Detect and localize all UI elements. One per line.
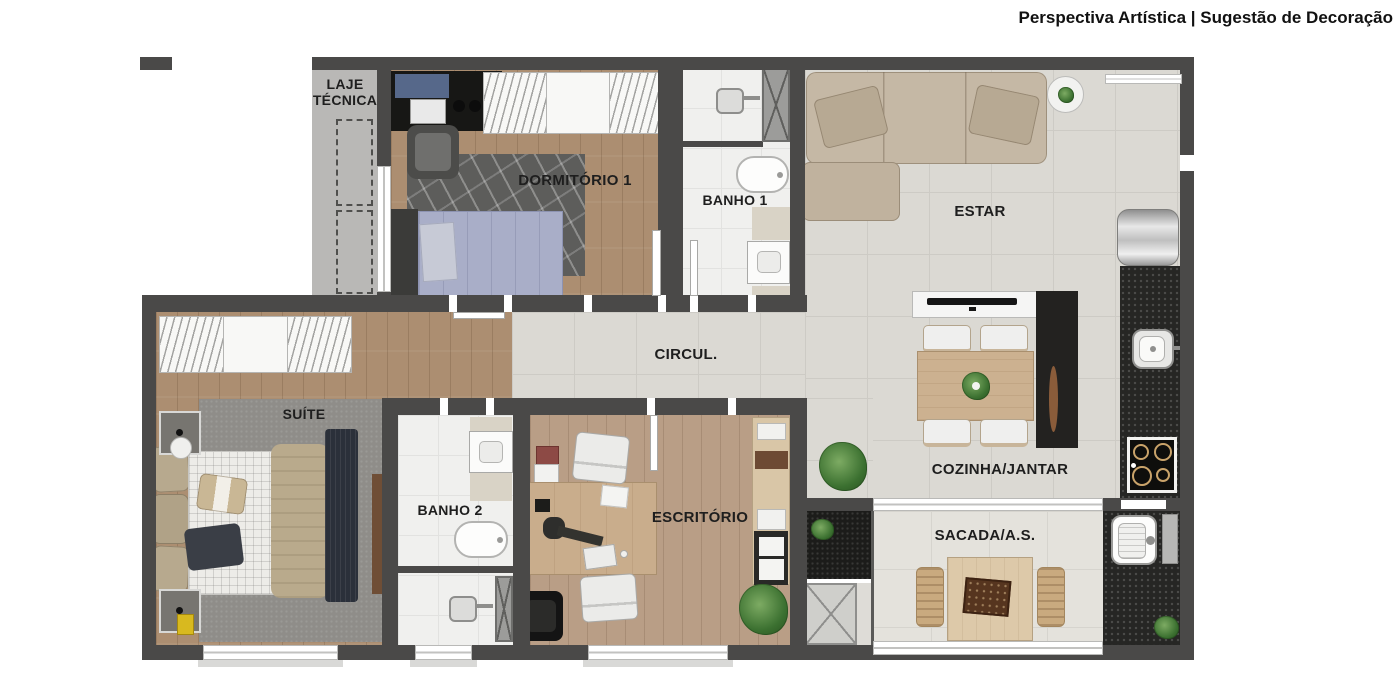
faucet bbox=[1146, 536, 1155, 545]
dining-chair bbox=[980, 325, 1028, 353]
plant bbox=[811, 519, 834, 540]
wardrobe-door bbox=[484, 73, 547, 133]
shaft-hatched bbox=[762, 68, 790, 142]
dining-chair bbox=[923, 325, 971, 353]
cooktop-burner bbox=[1156, 468, 1170, 482]
cooktop-burner bbox=[1154, 443, 1172, 461]
shaft-hatched bbox=[805, 583, 857, 645]
room-label-dormitorio-1: DORMITÓRIO 1 bbox=[505, 172, 645, 189]
room-label-cozinha-jantar: COZINHA/JANTAR bbox=[925, 461, 1075, 478]
speaker bbox=[469, 100, 481, 112]
shaft-hatched bbox=[495, 576, 513, 642]
bed-headboard bbox=[389, 209, 418, 300]
room-label-estar: ESTAR bbox=[940, 203, 1020, 220]
railing-divider bbox=[871, 511, 874, 645]
shelf-drawer bbox=[755, 451, 788, 469]
door-leaf bbox=[690, 240, 698, 296]
bed-pillow bbox=[419, 222, 458, 282]
wall bbox=[807, 498, 873, 511]
door-leaf bbox=[652, 230, 661, 296]
ac-condenser bbox=[336, 210, 373, 294]
bed-blanket bbox=[271, 444, 329, 598]
utility-panel bbox=[1162, 514, 1178, 564]
office-chair bbox=[572, 431, 631, 484]
wall bbox=[790, 57, 805, 312]
office-chair bbox=[579, 573, 638, 623]
desk-chair-seat bbox=[415, 133, 451, 171]
desk-monitor bbox=[395, 74, 449, 98]
nightstand-knob bbox=[176, 607, 183, 614]
door-leaf bbox=[650, 415, 658, 471]
bath-mat bbox=[470, 417, 512, 431]
printer bbox=[757, 423, 786, 440]
room-label-sacada-as: SACADA/A.S. bbox=[915, 527, 1055, 544]
side-cabinet bbox=[534, 464, 559, 483]
door-jamb bbox=[728, 398, 736, 415]
wall bbox=[312, 57, 1194, 70]
dining-chair bbox=[923, 419, 971, 447]
bed-pillow bbox=[152, 494, 189, 544]
toilet-flush bbox=[497, 537, 503, 543]
shower bbox=[449, 596, 477, 622]
door-jamb bbox=[1121, 500, 1166, 509]
shelf-box bbox=[757, 509, 786, 530]
speaker bbox=[453, 100, 465, 112]
wardrobe-door bbox=[547, 73, 610, 133]
bed-throw bbox=[184, 523, 245, 572]
plant bbox=[1058, 87, 1074, 103]
shelf-cabinet-drawer bbox=[759, 537, 784, 556]
room-label-laje-tecnica: LAJE TÉCNICA bbox=[310, 76, 380, 108]
sliding-glass-door bbox=[873, 498, 1103, 511]
tablet bbox=[535, 499, 550, 512]
serving-tray bbox=[963, 577, 1012, 617]
plant bbox=[819, 442, 867, 491]
wall bbox=[513, 415, 530, 645]
door-jamb bbox=[504, 295, 512, 312]
storage-box bbox=[536, 446, 559, 465]
paper-stack bbox=[600, 485, 629, 509]
cabinet-handle bbox=[1049, 366, 1058, 432]
wall bbox=[142, 295, 156, 660]
nightstand-knob bbox=[176, 429, 183, 436]
wardrobe-door bbox=[288, 317, 351, 372]
bed-pillow bbox=[196, 473, 249, 515]
wardrobe-door bbox=[224, 317, 288, 372]
wall bbox=[398, 566, 513, 573]
wall bbox=[683, 141, 763, 147]
tall-cabinet bbox=[1036, 291, 1078, 448]
wardrobe bbox=[159, 316, 352, 373]
door-leaf bbox=[453, 312, 505, 319]
room-label-circulacao: CIRCUL. bbox=[646, 346, 726, 363]
shower-arm bbox=[744, 96, 760, 100]
sink-drain bbox=[1150, 346, 1156, 352]
tv-stand bbox=[969, 307, 976, 311]
wall-stub bbox=[140, 57, 172, 70]
window-sill bbox=[583, 660, 733, 667]
balcony-chair bbox=[916, 567, 944, 627]
door-jamb bbox=[584, 295, 592, 312]
bath-mat bbox=[470, 473, 512, 501]
bed-runner bbox=[325, 429, 358, 602]
page-title: Perspectiva Artística | Sugestão de Deco… bbox=[1018, 8, 1393, 28]
floor-plan-image: Perspectiva Artística | Sugestão de Deco… bbox=[0, 0, 1400, 700]
window bbox=[588, 645, 728, 660]
door-jamb bbox=[449, 295, 457, 312]
bed-pillow bbox=[151, 545, 190, 593]
wall bbox=[142, 295, 807, 312]
wall bbox=[1180, 57, 1194, 660]
wardrobe bbox=[483, 72, 673, 134]
shower bbox=[716, 88, 744, 114]
sink-basin bbox=[479, 441, 503, 463]
door-jamb bbox=[647, 398, 655, 415]
plant bbox=[739, 584, 788, 635]
door-jamb bbox=[440, 398, 448, 415]
laptop bbox=[583, 544, 618, 570]
balcony-chair bbox=[1037, 567, 1065, 627]
cooktop-burner bbox=[1132, 466, 1152, 486]
door-jamb bbox=[486, 398, 494, 415]
room-label-banho-2: BANHO 2 bbox=[410, 502, 490, 518]
window bbox=[377, 166, 391, 292]
centerpiece-vase bbox=[972, 382, 980, 390]
laptop bbox=[410, 99, 446, 124]
tv bbox=[927, 298, 1017, 305]
window bbox=[1180, 155, 1194, 171]
sink-basin bbox=[757, 251, 781, 273]
room-label-escritorio: ESCRITÓRIO bbox=[640, 509, 760, 526]
mouse bbox=[620, 550, 628, 558]
sofa-chaise bbox=[802, 162, 900, 221]
refrigerator bbox=[1117, 209, 1179, 266]
door-jamb bbox=[690, 295, 698, 312]
vase bbox=[170, 437, 192, 459]
wall bbox=[658, 57, 683, 312]
plant bbox=[1154, 616, 1179, 639]
balcony-railing bbox=[873, 641, 1103, 655]
window bbox=[415, 645, 472, 660]
window-sill bbox=[198, 660, 343, 667]
shelf-cabinet-drawer bbox=[759, 559, 784, 580]
window bbox=[1105, 74, 1182, 84]
book bbox=[177, 614, 194, 635]
wall bbox=[790, 398, 807, 645]
toilet-flush bbox=[777, 172, 783, 178]
room-label-banho-1: BANHO 1 bbox=[695, 192, 775, 208]
door-jamb bbox=[658, 295, 666, 312]
office-chair-seat bbox=[526, 600, 556, 632]
shower-arm bbox=[477, 604, 493, 608]
laundry-tub-basin bbox=[1118, 523, 1146, 559]
wall bbox=[382, 398, 398, 645]
door-jamb bbox=[748, 295, 756, 312]
ac-condenser bbox=[336, 119, 373, 206]
window bbox=[203, 645, 338, 660]
cooktop-knob bbox=[1131, 463, 1136, 468]
wardrobe-door bbox=[160, 317, 224, 372]
bath-mat bbox=[752, 207, 790, 240]
room-label-suite: SUÍTE bbox=[264, 406, 344, 422]
dining-chair bbox=[980, 419, 1028, 447]
cooktop-burner bbox=[1133, 444, 1149, 460]
window-sill bbox=[410, 660, 477, 667]
